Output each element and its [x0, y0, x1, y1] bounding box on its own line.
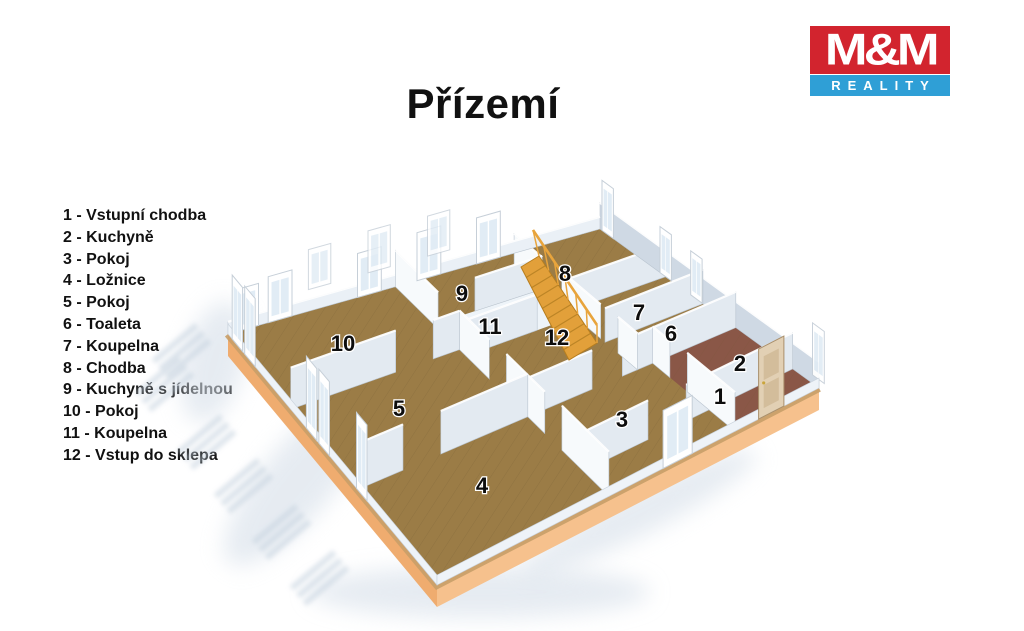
room-number-label-3: 3 — [616, 407, 628, 432]
room-number-label-10: 10 — [331, 331, 355, 356]
window-frame — [308, 243, 330, 289]
window-frame — [813, 323, 825, 384]
room-number-label-12: 12 — [545, 325, 569, 350]
room-number-label-7: 7 — [633, 300, 645, 325]
window-frame — [477, 211, 501, 264]
floorplan-page: Přízemí M&M REALITY 1 - Vstupní chodba2 … — [0, 0, 1024, 631]
window-frame — [691, 251, 702, 303]
window-frame — [319, 369, 330, 456]
room-number-label-1: 1 — [714, 384, 726, 409]
window-frame — [357, 412, 368, 501]
room-number-label-9: 9 — [456, 281, 468, 306]
window-shadow — [177, 414, 237, 470]
room-number-label-5: 5 — [393, 396, 405, 421]
door-knob — [762, 381, 765, 384]
room-number-label-11: 11 — [478, 314, 501, 339]
room-number-label-8: 8 — [559, 261, 571, 286]
floorplan-rendering: 123456789101112 — [0, 0, 1024, 631]
window-frame — [306, 356, 316, 441]
window-frame — [232, 275, 242, 352]
window-frame — [428, 210, 450, 256]
window-frame — [602, 180, 613, 238]
window-frame — [368, 225, 390, 273]
window-frame — [660, 227, 671, 281]
entry-door — [759, 336, 784, 419]
room-number-label-2: 2 — [734, 351, 746, 376]
room-number-label-6: 6 — [665, 321, 677, 346]
room-number-label-4: 4 — [476, 473, 489, 498]
window-frame — [268, 270, 292, 323]
window-frame — [245, 286, 256, 367]
